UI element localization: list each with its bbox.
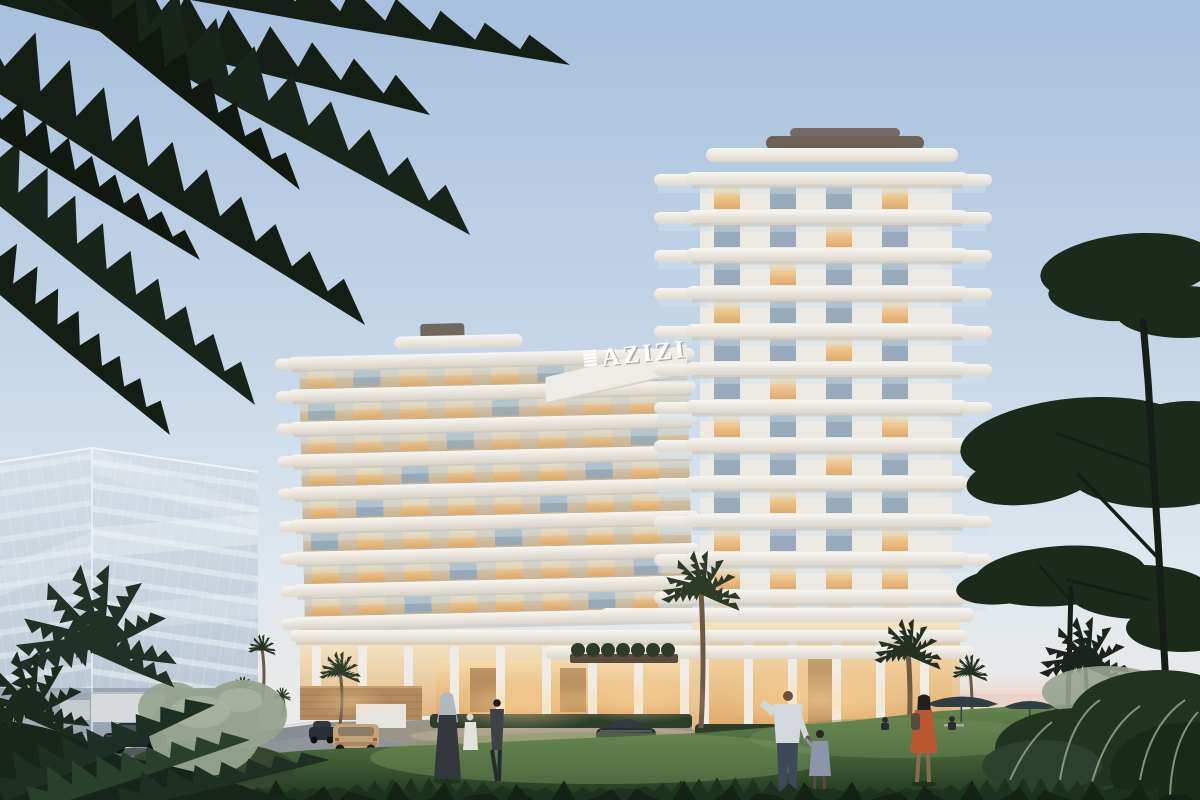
slab-shadow (692, 489, 962, 493)
wall-lamp-glow (310, 686, 390, 718)
tower-fascia (600, 608, 975, 622)
slab-shadow (692, 565, 962, 569)
guest-head (882, 717, 888, 723)
balcony-slab (686, 324, 968, 337)
guest-body (948, 722, 956, 730)
entrance-glow (560, 676, 720, 724)
shirt (773, 704, 803, 743)
slab-shadow (692, 223, 962, 227)
deck-shadow (296, 642, 960, 645)
slab-shadow (692, 185, 962, 189)
planter-bush (631, 643, 645, 657)
balcony-slab (686, 248, 968, 261)
slab-shadow (692, 413, 962, 417)
leg (499, 750, 500, 781)
backpack (911, 713, 920, 730)
head (783, 691, 793, 701)
planter-bush (661, 643, 675, 657)
render-canvas: AZIZI AZIZI (0, 0, 1200, 800)
leg (928, 753, 929, 782)
head (493, 699, 501, 707)
slab-shadow (692, 375, 962, 379)
architectural-render-scene: AZIZI AZIZI (0, 0, 1200, 800)
white-robe (463, 722, 478, 750)
balcony-slab (686, 286, 968, 299)
torso (490, 709, 504, 750)
balcony-slab (686, 400, 968, 413)
tower-crown-band (706, 148, 958, 162)
balcony-slab (686, 552, 968, 565)
tower-roof-cap-top (790, 128, 900, 138)
car-rear-window (338, 727, 374, 736)
tower-roof-cap (766, 136, 924, 150)
planter-bush (646, 643, 660, 657)
dress (809, 741, 831, 776)
slab-shadow (692, 337, 962, 341)
planter-bush (571, 643, 585, 657)
seated-guest (881, 717, 889, 730)
slab-shadow (692, 527, 962, 531)
bush-highlight (218, 688, 262, 712)
balcony-slab (686, 210, 968, 223)
slab-shadow (692, 451, 962, 455)
left-wing-floors (275, 348, 701, 633)
guest-body (881, 723, 889, 730)
slab-shadow (692, 261, 962, 265)
balcony-slab (686, 438, 968, 451)
balcony-slab (686, 172, 968, 185)
head (816, 730, 824, 738)
planter-bush (601, 643, 615, 657)
car-highlight (600, 730, 652, 732)
leg (917, 753, 919, 782)
seated-guest (948, 716, 956, 730)
balcony-slab (686, 514, 968, 527)
tail-light (335, 738, 339, 741)
wheel (327, 737, 334, 744)
umbrella-pole (961, 704, 963, 722)
wheel (311, 737, 318, 744)
far-building-2 (60, 700, 90, 720)
planter-bush (616, 643, 630, 657)
head (467, 714, 474, 721)
balcony-slab (686, 362, 968, 375)
guest-head (949, 716, 955, 722)
slab-shadow (692, 299, 962, 303)
tail-light (373, 738, 377, 741)
planter-bush (586, 643, 600, 657)
podium-deck-slab (290, 630, 968, 642)
balcony-slab (686, 476, 968, 489)
